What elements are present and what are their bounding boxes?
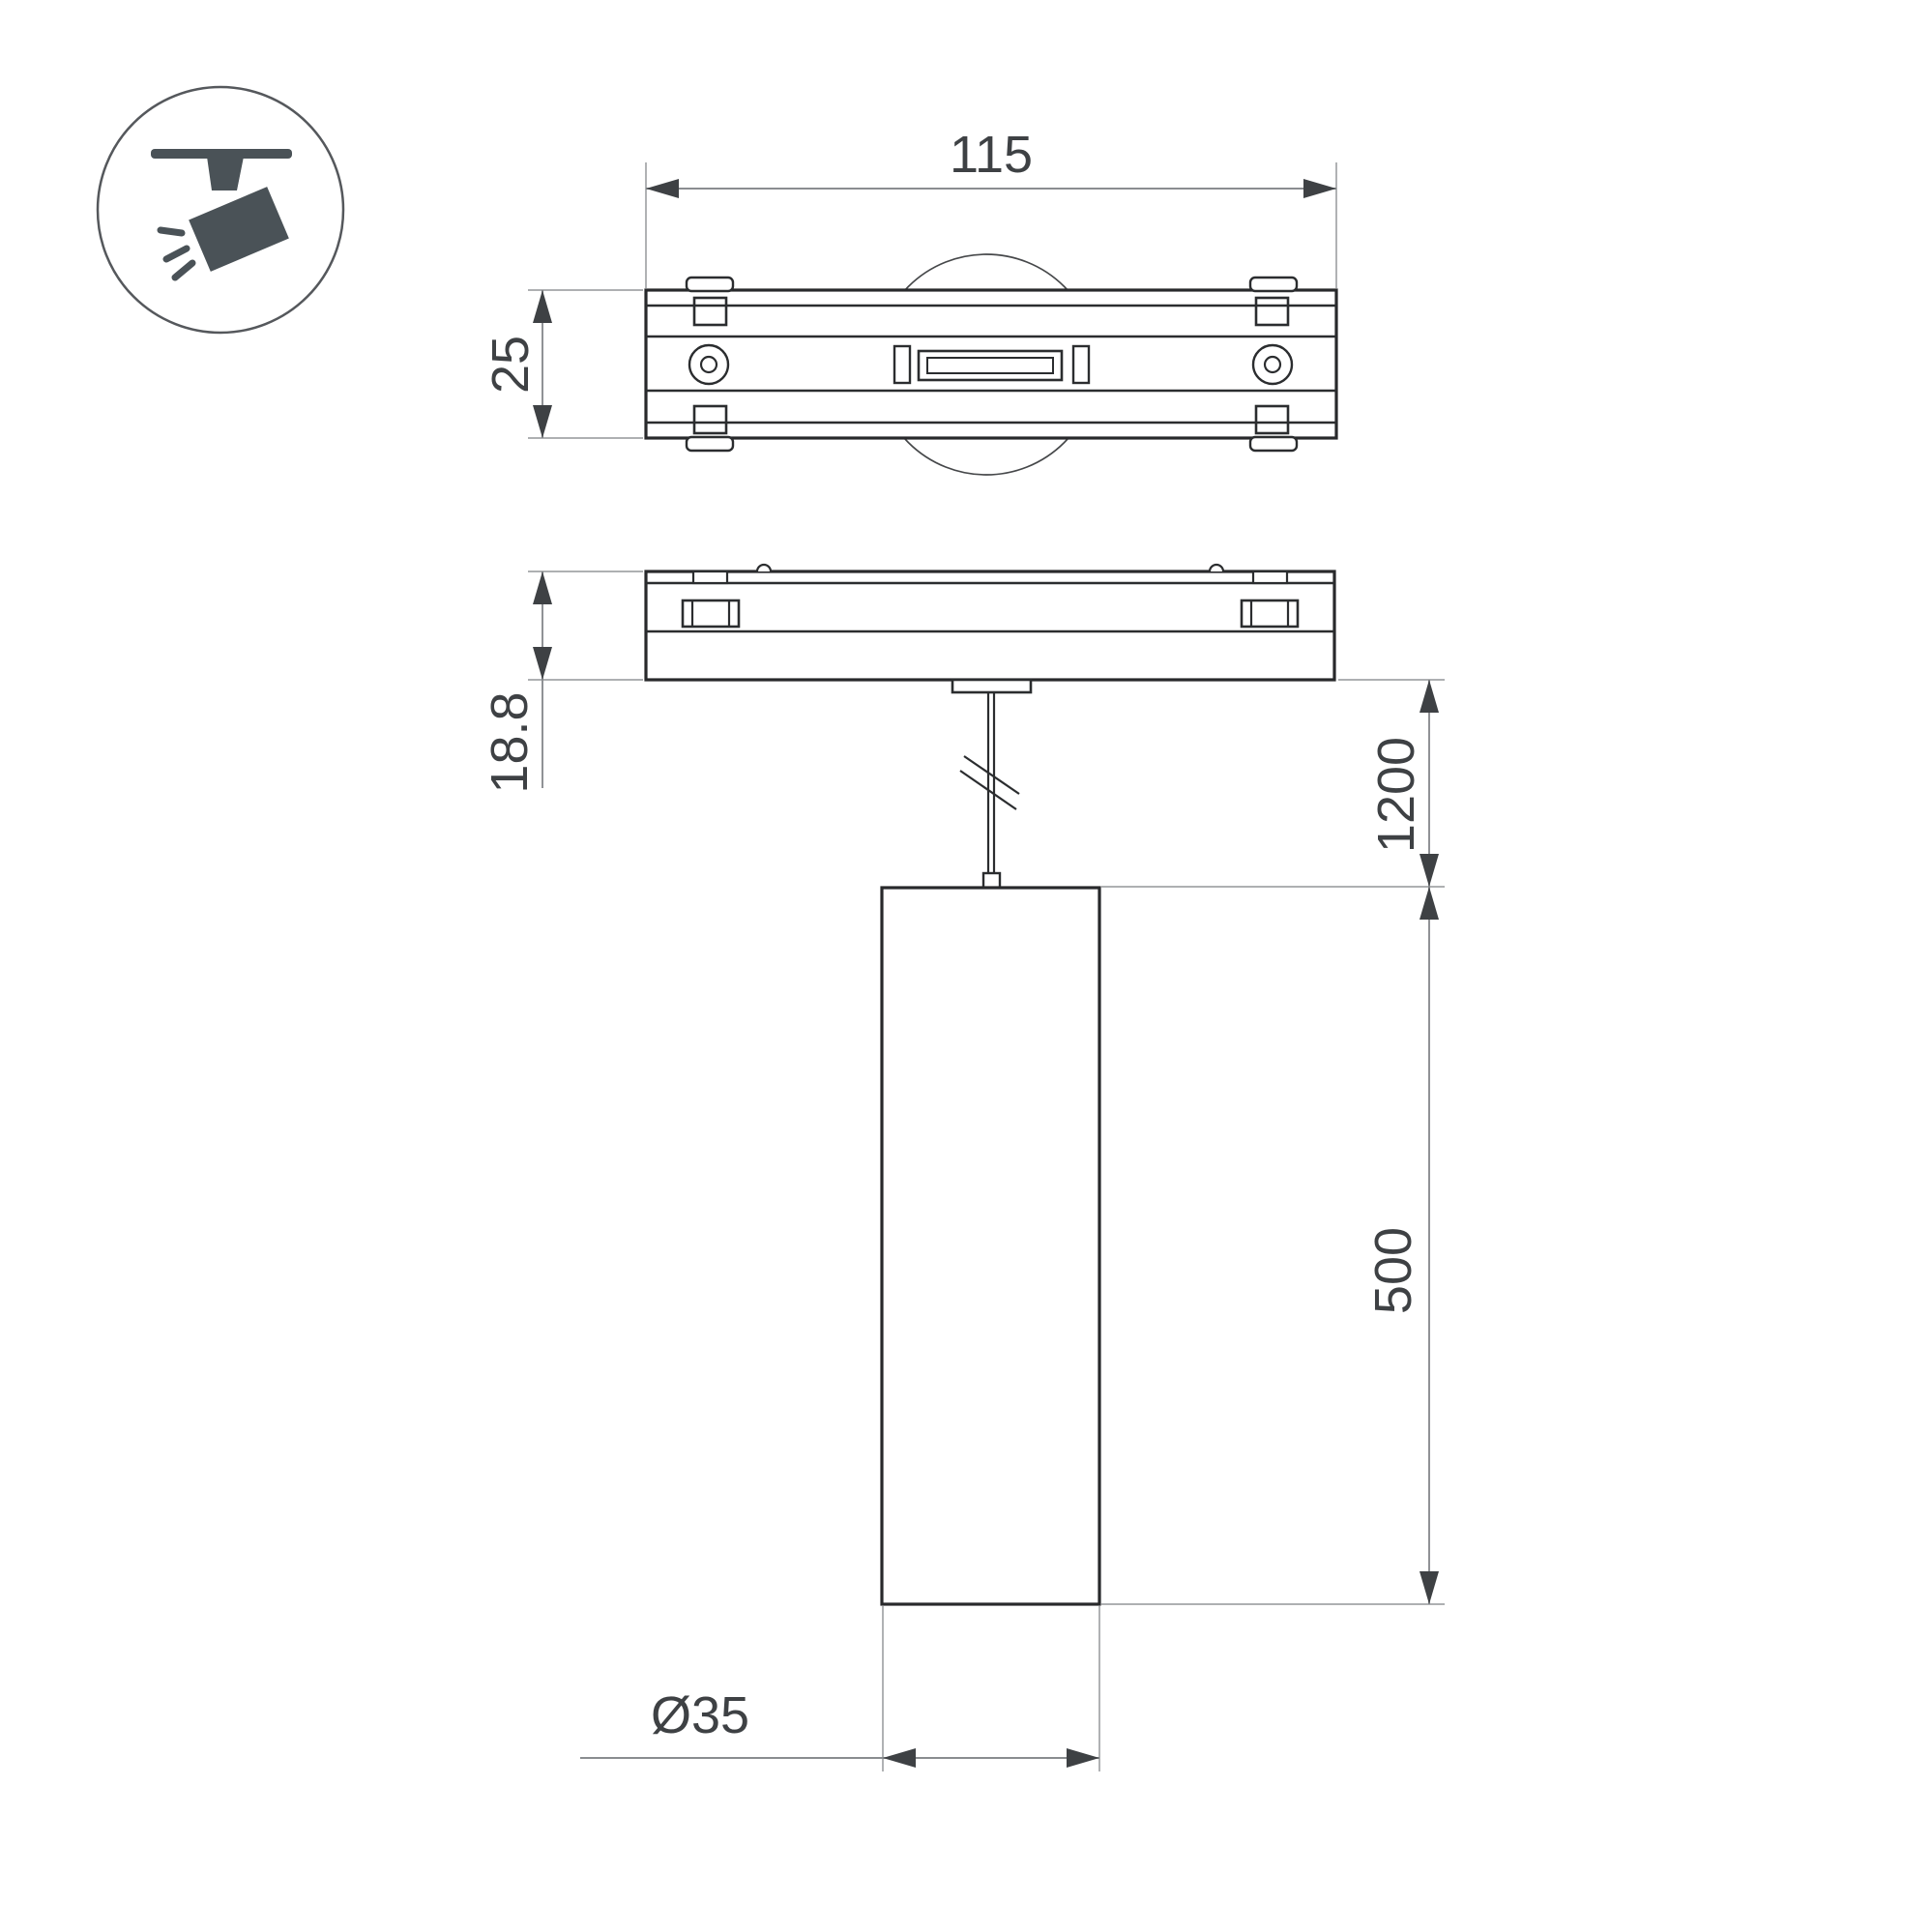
arrowhead-bottom-188 (533, 647, 552, 680)
suspension-wire (988, 692, 994, 873)
notch-left (693, 571, 727, 583)
switch-left (683, 600, 739, 627)
wire-gripper (983, 873, 1000, 888)
connector-slot (927, 358, 1053, 373)
dimension-label-d35: Ø35 (651, 1686, 749, 1744)
arrowhead-top-500 (1420, 887, 1439, 920)
tab-bottom-right (1250, 437, 1297, 451)
arrowhead-bottom-25 (533, 405, 552, 438)
arrowhead-bottom-500 (1420, 1571, 1439, 1604)
connector-pin-left (894, 346, 910, 383)
arrowhead-left-d35 (883, 1748, 916, 1768)
tab-top-right (1250, 278, 1297, 291)
tab-bottom-left (687, 437, 733, 451)
dimension-track-depth: 25 (482, 290, 643, 438)
wire-break-symbol (960, 756, 1019, 809)
top-view-connector (894, 346, 1089, 383)
dimension-body-length: 500 (1101, 887, 1445, 1604)
arrowhead-right-115 (1303, 179, 1336, 198)
dimension-label-500: 500 (1364, 1227, 1422, 1314)
dimension-label-25: 25 (482, 336, 540, 394)
arrowhead-top-188 (533, 571, 552, 604)
dimension-suspension-length: 1200 (1101, 680, 1445, 887)
connector-pin-right (1073, 346, 1089, 383)
dimension-label-188: 18.8 (481, 691, 539, 793)
bump-right (1210, 565, 1223, 571)
screw-left-center (701, 357, 717, 372)
extension-lines-d35 (883, 1606, 1099, 1771)
arrowhead-top-25 (533, 290, 552, 323)
screw-right-center (1265, 357, 1280, 372)
arrowhead-top-1200 (1420, 680, 1439, 713)
bump-left (757, 565, 771, 571)
switch-right (1242, 600, 1298, 627)
track-spotlight-icon (98, 87, 343, 333)
dimension-drawing-canvas: 115 25 18.8 1200 (0, 0, 1932, 1932)
arrowhead-left-115 (646, 179, 679, 198)
drawing-page: 115 25 18.8 1200 (0, 0, 1932, 1932)
arrowhead-right-d35 (1067, 1748, 1099, 1768)
dimension-label-115: 115 (950, 126, 1033, 184)
top-view (646, 254, 1336, 475)
side-view (646, 565, 1334, 888)
arrowhead-bottom-1200 (1420, 854, 1439, 887)
tab-top-left (687, 278, 733, 291)
pendant-cylinder-body (882, 888, 1099, 1604)
side-view-body (646, 571, 1334, 680)
dimension-body-diameter: Ø35 (580, 1606, 1099, 1771)
dimension-base-height: 18.8 (481, 571, 643, 794)
dimension-track-width: 115 (646, 126, 1336, 288)
suspension-canopy (952, 680, 1031, 692)
notch-right (1253, 571, 1287, 583)
dimension-label-1200: 1200 (1367, 737, 1425, 853)
